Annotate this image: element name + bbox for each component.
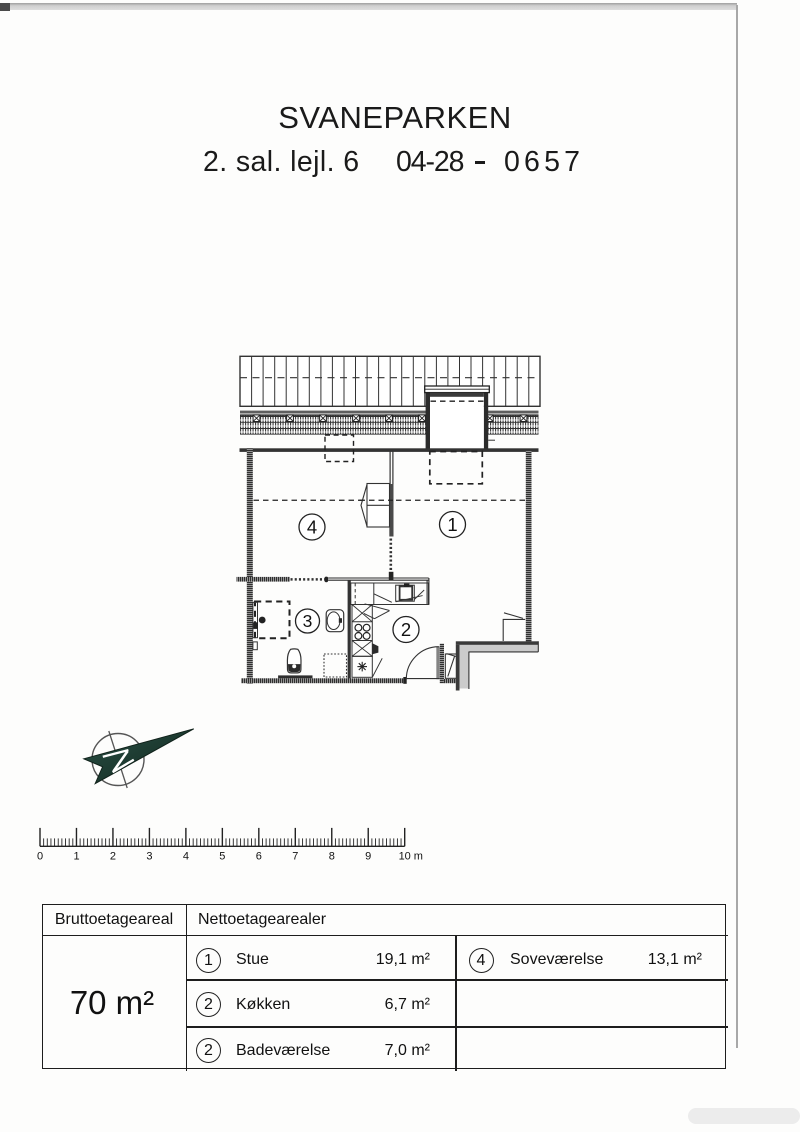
svg-text:4: 4 (183, 851, 189, 863)
svg-text:m: m (414, 851, 423, 863)
svg-text:10: 10 (399, 851, 411, 863)
svg-text:0: 0 (37, 851, 43, 863)
svg-text:2: 2 (110, 851, 116, 863)
svg-text:2: 2 (401, 619, 411, 640)
svg-text:3: 3 (303, 611, 313, 631)
svg-text:3: 3 (146, 851, 152, 863)
svg-text:4: 4 (307, 517, 317, 538)
svg-text:7: 7 (292, 851, 298, 863)
svg-text:8: 8 (329, 851, 335, 863)
svg-text:1: 1 (447, 514, 457, 535)
svg-text:9: 9 (365, 851, 371, 863)
svg-text:1: 1 (73, 851, 79, 863)
svg-text:6: 6 (256, 851, 262, 863)
svg-text:5: 5 (219, 851, 225, 863)
